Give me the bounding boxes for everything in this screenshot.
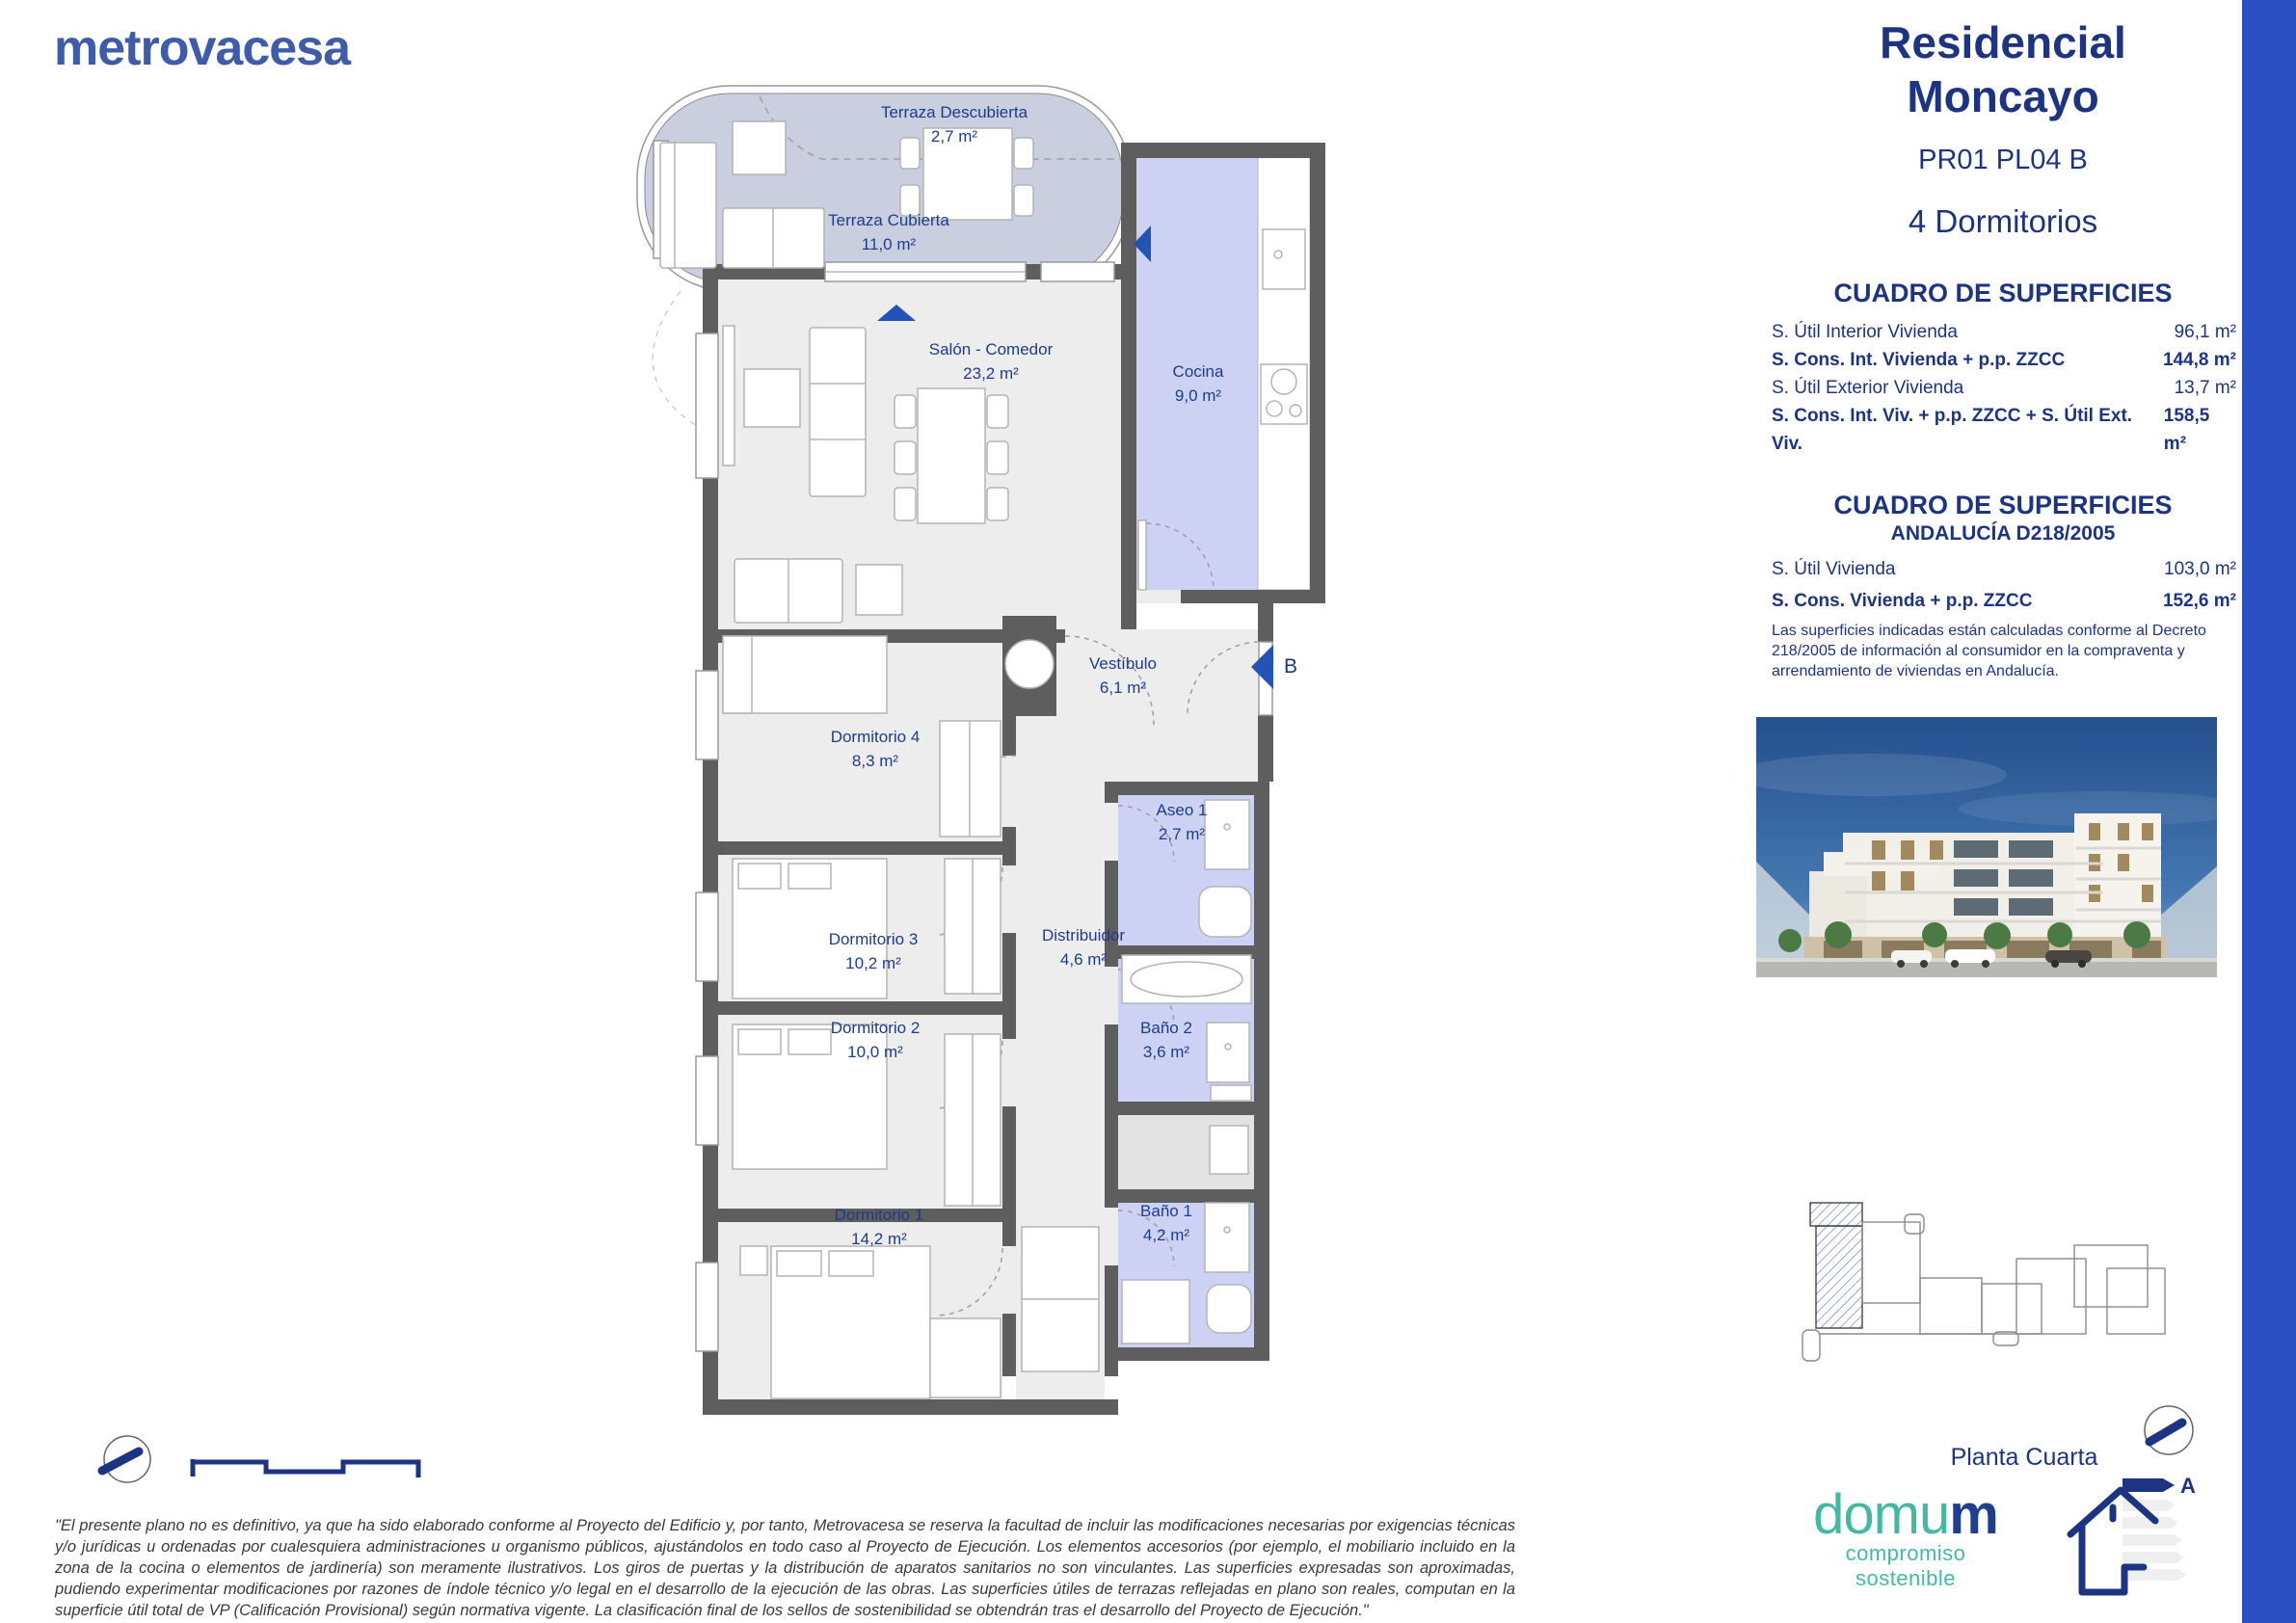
table-row: S. Útil Exterior Vivienda 13,7 m² [1764, 374, 2242, 402]
floor-plan: Terraza Descubierta 2,7 m² Terraza Cubie… [636, 85, 1325, 1415]
table-row: S. Útil Vivienda 103,0 m² [1764, 555, 2242, 583]
room-label: Terraza Cubierta 11,0 m² [828, 208, 949, 256]
table-row: S. Cons. Vivienda + p.p. ZZCC 152,6 m² [1764, 587, 2242, 615]
surfaces-table: S. Útil Interior Vivienda 96,1 m² S. Con… [1764, 318, 2242, 458]
scale-bar [189, 1448, 424, 1496]
domum-logo: domum compromiso sostenible [1795, 1482, 2016, 1591]
room-label: Distribuidor 4,6 m² [1042, 923, 1125, 971]
room-label: Aseo 1 2,7 m² [1157, 798, 1208, 846]
table-row: S. Cons. Int. Vivienda + p.p. ZZCC 144,8… [1764, 346, 2242, 374]
room-label: Cocina 9,0 m² [1173, 359, 1224, 408]
metrovacesa-logo: metrovacesa [54, 19, 350, 77]
floor-plan-drawing [636, 85, 1325, 1415]
surfaces-table-title: CUADRO DE SUPERFICIES [1764, 279, 2242, 308]
compass-icon [2138, 1399, 2200, 1461]
andalucia-table-title: CUADRO DE SUPERFICIES [1764, 491, 2242, 520]
room-label: Dormitorio 1 14,2 m² [835, 1203, 924, 1251]
room-label: Dormitorio 3 10,2 m² [829, 927, 919, 975]
room-label: Baño 1 4,2 m² [1140, 1199, 1192, 1247]
legal-disclaimer: "El presente plano no es definitivo, ya … [55, 1515, 1515, 1621]
andalucia-table: S. Útil Vivienda 103,0 m² S. Cons. Vivie… [1764, 555, 2242, 681]
room-label: Dormitorio 4 8,3 m² [831, 725, 921, 773]
room-label: Baño 2 3,6 m² [1140, 1016, 1192, 1064]
info-panel: Residencial Moncayo PR01 PL04 B 4 Dormit… [1764, 0, 2242, 681]
room-label: Vestíbulo 6,1 m² [1089, 652, 1157, 700]
energy-rating-icon: A [2063, 1475, 2198, 1604]
building-locator-plan [1789, 1187, 2203, 1366]
bedrooms-label: 4 Dormitorios [1764, 203, 2242, 240]
floor-level-label: Planta Cuarta [1918, 1444, 2130, 1472]
section-marker-b: B [1284, 655, 1297, 678]
room-label: Salón - Comedor 23,2 m² [929, 337, 1054, 386]
table-row: S. Cons. Int. Viv. + p.p. ZZCC + S. Útil… [1764, 402, 2242, 458]
room-label: Terraza Descubierta 2,7 m² [881, 100, 1028, 148]
compass-icon [94, 1430, 156, 1492]
andalucia-note: Las superficies indicadas están calculad… [1764, 615, 2242, 681]
andalucia-table-subtitle: ANDALUCÍA D218/2005 [1764, 522, 2242, 545]
energy-rating-letter: A [2180, 1475, 2196, 1498]
room-label: Dormitorio 2 10,0 m² [831, 1016, 921, 1064]
domum-tagline: compromiso sostenible [1795, 1541, 2016, 1591]
brochure-page: metrovacesa Residencial Moncayo PR01 PL0… [0, 0, 2296, 1623]
page-title-line1: Residencial [1764, 15, 2242, 69]
building-render-photo [1756, 717, 2217, 977]
accent-side-bar [2242, 0, 2296, 1623]
unit-code: PR01 PL04 B [1764, 145, 2242, 176]
page-title-line2: Moncayo [1764, 69, 2242, 123]
table-row: S. Útil Interior Vivienda 96,1 m² [1764, 318, 2242, 346]
